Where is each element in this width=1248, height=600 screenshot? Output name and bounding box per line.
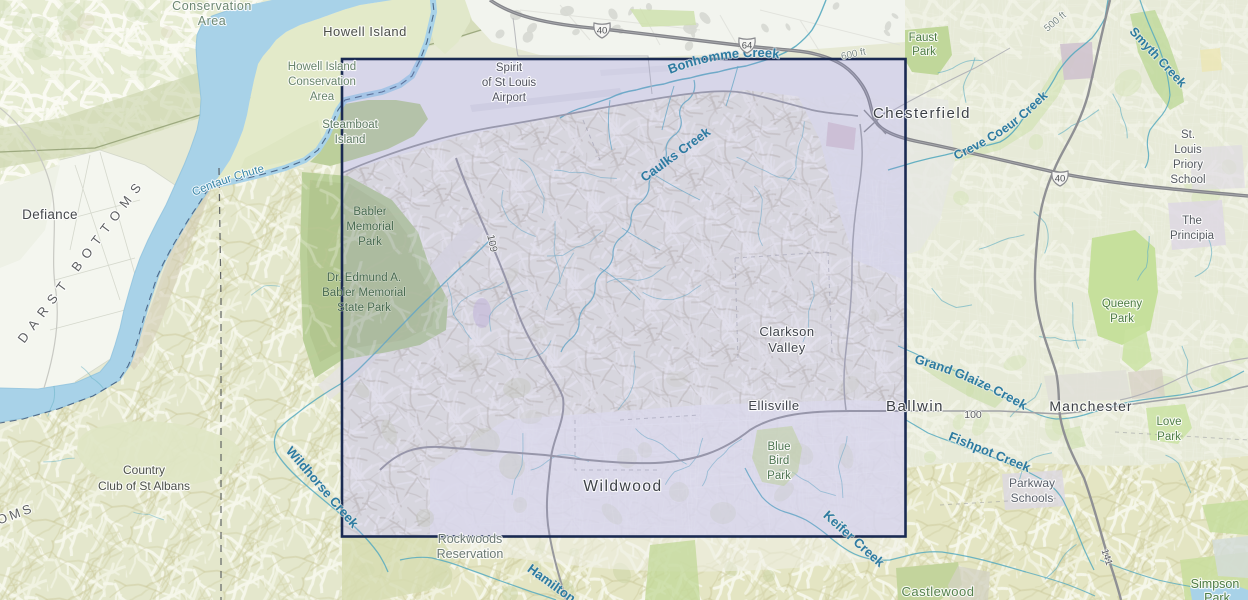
svg-text:Club of St Albans: Club of St Albans [98, 479, 190, 493]
svg-text:40: 40 [597, 26, 608, 37]
svg-text:Park: Park [1110, 313, 1134, 325]
svg-text:Country: Country [123, 463, 165, 477]
svg-text:Clarkson: Clarkson [759, 324, 814, 339]
svg-text:Priory: Priory [1173, 159, 1203, 171]
svg-text:Valley: Valley [768, 340, 805, 355]
svg-text:Principia: Principia [1170, 230, 1215, 242]
svg-text:Park: Park [912, 46, 936, 58]
svg-text:Simpson: Simpson [1191, 577, 1240, 591]
svg-text:Louis: Louis [1174, 144, 1202, 156]
svg-text:Castlewood: Castlewood [902, 584, 975, 599]
svg-text:Faust: Faust [909, 32, 939, 44]
svg-text:64: 64 [742, 41, 753, 52]
svg-text:The: The [1182, 215, 1202, 227]
svg-text:Airport: Airport [492, 92, 527, 104]
svg-text:Conservation: Conservation [172, 0, 252, 13]
svg-text:Steamboat: Steamboat [322, 119, 378, 131]
svg-text:of St Louis: of St Louis [482, 77, 537, 89]
svg-text:Chesterfield: Chesterfield [873, 105, 971, 122]
svg-text:Bird: Bird [769, 455, 789, 467]
svg-text:Queeny: Queeny [1102, 298, 1143, 310]
svg-text:Defiance: Defiance [22, 207, 78, 222]
svg-text:40: 40 [1055, 174, 1066, 185]
svg-text:Ellisville: Ellisville [748, 398, 799, 413]
svg-text:Schools: Schools [1011, 491, 1054, 505]
svg-text:Love: Love [1157, 416, 1182, 428]
svg-text:Conservation: Conservation [288, 76, 356, 88]
svg-text:Babler Memorial: Babler Memorial [322, 287, 406, 299]
svg-text:Manchester: Manchester [1049, 398, 1132, 414]
svg-text:Park: Park [358, 236, 382, 248]
svg-text:Parkway: Parkway [1009, 476, 1055, 490]
svg-text:Area: Area [198, 14, 226, 28]
svg-text:Dr. Edmund A.: Dr. Edmund A. [327, 272, 401, 284]
svg-text:Blue: Blue [767, 441, 790, 453]
svg-text:Area: Area [310, 91, 335, 103]
svg-text:Rockwoods: Rockwoods [438, 532, 503, 546]
svg-text:Memorial: Memorial [346, 221, 393, 233]
svg-text:Reservation: Reservation [437, 547, 504, 561]
svg-text:Park: Park [767, 470, 791, 482]
svg-text:Wildwood: Wildwood [583, 478, 662, 495]
svg-text:Howell Island: Howell Island [288, 61, 356, 73]
svg-text:Spirit: Spirit [496, 62, 523, 74]
svg-text:100: 100 [964, 409, 982, 421]
svg-text:St.: St. [1181, 129, 1195, 141]
svg-text:State Park: State Park [337, 302, 391, 314]
svg-text:Howell Island: Howell Island [323, 24, 407, 39]
svg-text:Ballwin: Ballwin [886, 398, 944, 415]
svg-text:Babler: Babler [353, 206, 386, 218]
svg-text:School: School [1170, 174, 1205, 186]
svg-text:Park: Park [1157, 431, 1181, 443]
svg-text:Island: Island [335, 134, 366, 146]
svg-text:Park: Park [1204, 591, 1230, 600]
